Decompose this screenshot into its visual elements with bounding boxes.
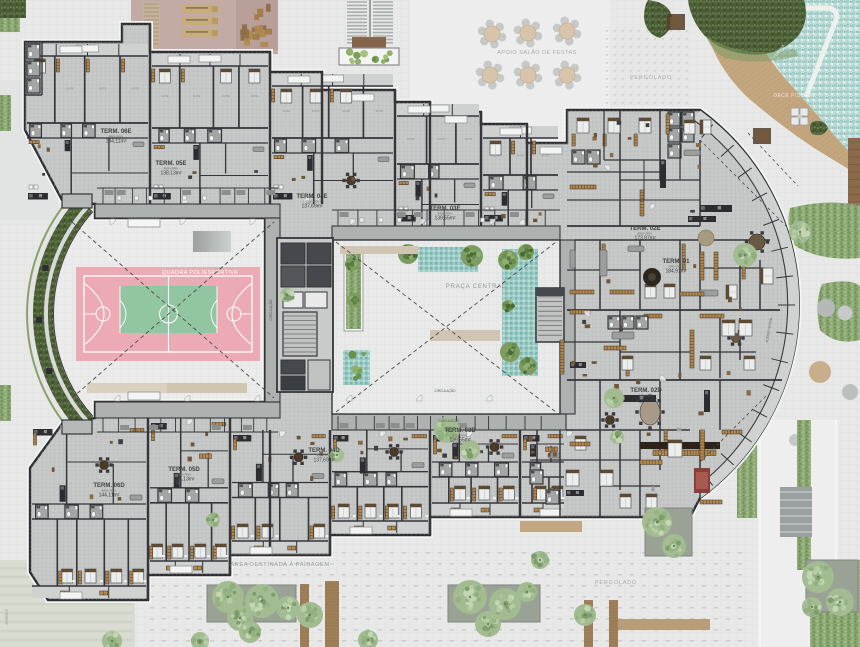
svg-text:SUITE: SUITE	[161, 94, 169, 98]
svg-text:CIRCULAÇÃO: CIRCULAÇÃO	[435, 388, 456, 393]
svg-text:ÁREA DESTINADA À PAISAGEM: ÁREA DESTINADA À PAISAGEM	[230, 561, 329, 568]
svg-text:144,11m²: 144,11m²	[106, 139, 127, 145]
svg-text:SUITE: SUITE	[407, 137, 415, 141]
svg-text:PERGOLADO: PERGOLADO	[630, 75, 672, 81]
svg-text:SUITE: SUITE	[222, 94, 230, 98]
svg-text:144,11m²: 144,11m²	[99, 493, 120, 499]
svg-text:139,55m²: 139,55m²	[434, 216, 455, 222]
svg-text:SUITE: SUITE	[492, 154, 500, 158]
svg-text:SUITE: SUITE	[312, 109, 320, 113]
svg-text:CIRCULAÇÃO: CIRCULAÇÃO	[439, 418, 460, 423]
svg-text:138,13m²: 138,13m²	[173, 477, 194, 483]
svg-text:173,97m²: 173,97m²	[635, 398, 656, 404]
svg-text:SUITE: SUITE	[342, 109, 350, 113]
svg-text:QUADRA POLIESPORTIVA: QUADRA POLIESPORTIVA	[162, 270, 238, 276]
svg-text:JARDIM: JARDIM	[4, 609, 9, 625]
svg-text:PISCINA: PISCINA	[846, 27, 860, 32]
svg-text:SUITE: SUITE	[251, 94, 259, 98]
svg-text:SUITE: SUITE	[465, 137, 473, 141]
svg-text:APOIO SALÃO DE FESTAS: APOIO SALÃO DE FESTAS	[497, 49, 576, 56]
svg-text:LOUNGE: LOUNGE	[843, 202, 860, 207]
svg-text:184,91m²: 184,91m²	[665, 269, 686, 275]
svg-text:138,13m²: 138,13m²	[160, 171, 181, 177]
svg-text:139,55m²: 139,55m²	[449, 438, 470, 444]
svg-text:DECK PISCINA: DECK PISCINA	[773, 93, 814, 99]
svg-text:CIRCULAÇÃO: CIRCULAÇÃO	[268, 299, 273, 320]
svg-text:173,97m²: 173,97m²	[634, 236, 655, 242]
svg-text:SUITE: SUITE	[437, 137, 445, 141]
svg-text:SUITE: SUITE	[98, 87, 106, 91]
svg-text:137,69m²: 137,69m²	[301, 204, 322, 210]
svg-text:SUITE: SUITE	[282, 109, 290, 113]
svg-text:SUITE: SUITE	[375, 109, 383, 113]
svg-text:PERGOLADO: PERGOLADO	[595, 580, 637, 586]
svg-text:137,69m²: 137,69m²	[313, 458, 334, 464]
svg-text:SUITE: SUITE	[131, 87, 139, 91]
svg-text:SUITE: SUITE	[517, 154, 525, 158]
svg-text:SUITE: SUITE	[66, 87, 74, 91]
svg-text:SUITE: SUITE	[193, 94, 201, 98]
